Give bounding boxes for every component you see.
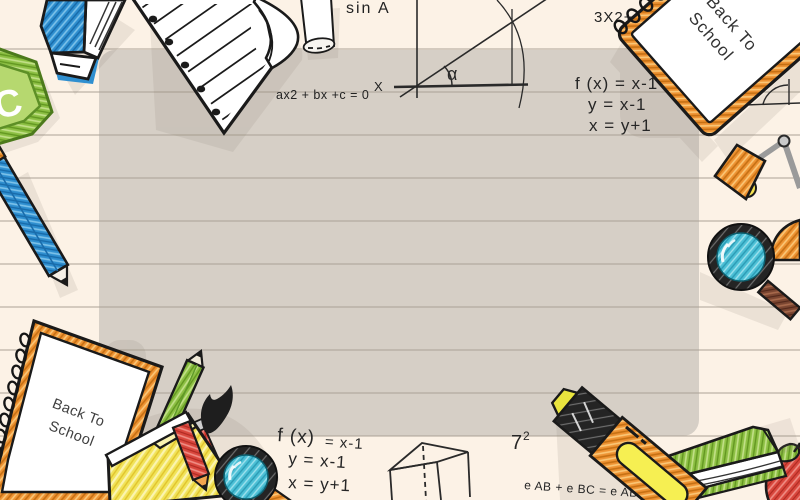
svg-text:7: 7: [511, 432, 522, 454]
svg-text:y = x-1: y = x-1: [288, 449, 348, 472]
svg-text:x = y+1: x = y+1: [288, 473, 352, 495]
svg-text:x = y+1: x = y+1: [589, 116, 652, 135]
svg-text:f (x) = x-1: f (x) = x-1: [575, 74, 658, 93]
svg-text:2: 2: [523, 429, 530, 443]
svg-text:ax2 + bx +c = 0: ax2 + bx +c = 0: [276, 88, 369, 102]
svg-text:X: X: [374, 79, 383, 94]
svg-text:α: α: [447, 64, 457, 84]
svg-text:y = x-1: y = x-1: [588, 95, 647, 114]
svg-text:sin A: sin A: [346, 0, 391, 17]
